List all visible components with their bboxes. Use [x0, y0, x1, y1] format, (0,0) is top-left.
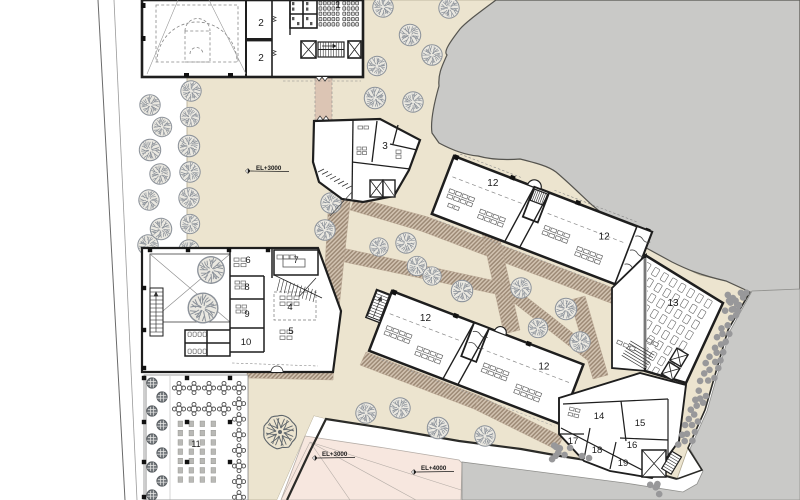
svg-text:2: 2	[258, 18, 264, 29]
svg-text:2: 2	[258, 53, 264, 64]
svg-text:4: 4	[287, 302, 292, 313]
svg-text:EL+4000: EL+4000	[421, 465, 447, 472]
svg-text:11: 11	[191, 439, 200, 449]
svg-text:12: 12	[538, 362, 550, 373]
svg-text:15: 15	[635, 418, 646, 429]
svg-text:9: 9	[244, 309, 249, 320]
svg-text:13: 13	[667, 298, 679, 309]
svg-text:EL+3000: EL+3000	[256, 165, 282, 172]
svg-text:1: 1	[335, 0, 341, 11]
svg-text:3: 3	[382, 141, 388, 152]
svg-text:EL+3000: EL+3000	[322, 451, 348, 458]
svg-text:5: 5	[288, 326, 293, 337]
svg-text:6: 6	[245, 255, 250, 266]
svg-text:16: 16	[627, 440, 638, 451]
svg-text:7: 7	[293, 255, 298, 266]
svg-text:19: 19	[618, 458, 629, 469]
svg-text:12: 12	[487, 178, 499, 189]
svg-text:10: 10	[241, 337, 252, 348]
svg-text:14: 14	[594, 411, 605, 422]
svg-text:18: 18	[592, 445, 603, 456]
svg-text:12: 12	[599, 231, 611, 242]
svg-text:8: 8	[244, 282, 249, 293]
svg-text:12: 12	[420, 313, 432, 324]
